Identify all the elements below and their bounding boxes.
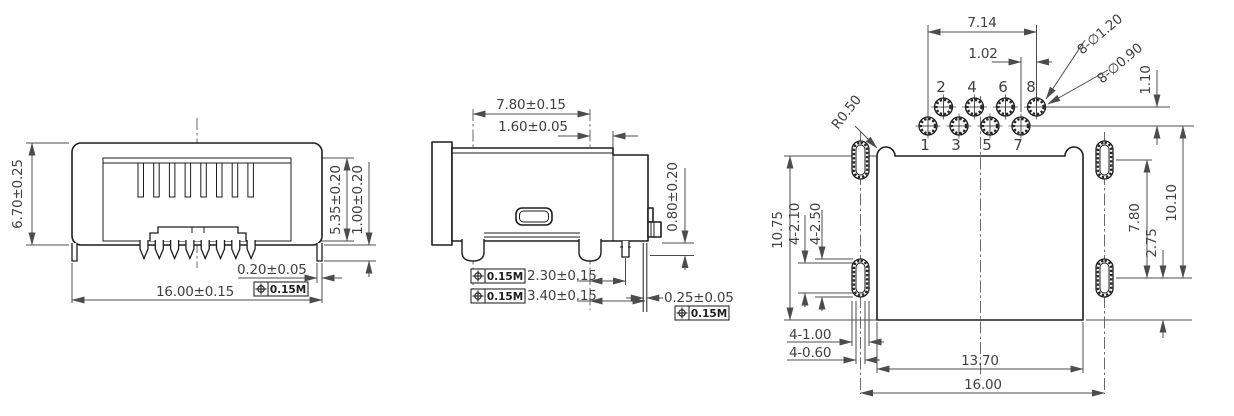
pin-label-3: 3 [951,136,961,154]
pin-hole-1 [916,114,941,139]
dim-overall-height: 10.10 [1164,184,1180,222]
pin-hole-4 [962,95,987,120]
dim-pad-width: 4-1.00 [789,327,831,343]
dim-front-opening: 5.35±0.20 [328,165,344,235]
callout-corner-radius: R0.50 [829,92,865,132]
latch-block [150,227,246,241]
dim-pin-stagger: 1.02 [968,46,997,62]
dim-side-row2: 3.40±0.15 [527,288,597,304]
dim-left-height: 10.75 [770,211,786,249]
dim-front-height: 6.70±0.25 [10,159,26,229]
engineering-drawing-canvas: 0.15M 6.70±0.25 16.00±0.15 0.20±0.05 [0,0,1234,416]
pin-hole-8 [1024,95,1049,120]
dim-front-tab: 0.20±0.05 [237,262,307,278]
mounting-pad [1096,141,1113,179]
pin-hole-7 [1009,114,1034,139]
through-pin-row1 [622,241,629,257]
dim-body-width: 13.70 [961,353,999,369]
dim-side-span: 7.80±0.15 [496,97,566,113]
pin-label-8: 8 [1026,78,1036,96]
pin-label-7: 7 [1013,136,1023,154]
dim-pad-length: 4-2.50 [808,203,824,245]
pin-label-1: 1 [920,136,930,154]
dim-side-row1: 2.30±0.15 [527,268,597,284]
pin-hole-5 [978,114,1003,139]
dim-slot-length: 4-2.10 [787,203,803,245]
left-leg [72,243,77,261]
dim-front-width: 16.00±0.15 [156,284,234,300]
mounting-post-front [462,239,484,261]
dim-front-protrusion: 1.00±0.20 [350,165,366,235]
side-geometry [432,142,661,312]
callout-pad-dia: 8-∅1.20 [1074,11,1126,58]
dim-side-pin-thickness: 0.25±0.05 [664,290,734,306]
front-geometry [72,118,322,268]
front-view: 6.70±0.25 16.00±0.15 0.20±0.05 5.35±0.20… [10,118,376,303]
dim-overall-width: 16.00 [964,377,1002,393]
right-leg [317,243,322,261]
footprint-geometry: 1 2 3 4 5 6 7 8 [852,78,1113,320]
pin-label-5: 5 [982,136,992,154]
dim-pad-column-span: 7.80 [1127,203,1143,232]
dim-side-offset: 1.60±0.05 [498,119,568,135]
dim-side-tab-height: 0.80±0.20 [665,162,681,232]
mounting-pad [852,141,869,179]
pin-label-2: 2 [936,78,946,96]
dim-pin-span: 7.14 [967,15,996,31]
dim-pad-to-edge: 2.75 [1144,228,1160,257]
connector-drawing: 0.15M 6.70±0.25 16.00±0.15 0.20±0.05 [0,0,1234,416]
footprint-dimensions: 7.14 1.02 8-∅1.20 8-∅0.90 1.10 R0.50 1 [770,11,1194,394]
pin-hole-2 [931,95,956,120]
front-flange [432,142,452,245]
pin-label-4: 4 [967,78,977,96]
pin-label-6: 6 [998,78,1008,96]
pin-hole-6 [993,95,1018,120]
dim-slot-width: 4-0.60 [789,345,831,361]
through-pin-row2 [643,243,647,312]
mounting-pad [1096,259,1113,297]
mounting-pad [852,259,869,297]
footprint-view: 7.14 1.02 8-∅1.20 8-∅0.90 1.10 R0.50 1 [770,11,1194,394]
mounting-post-rear [579,239,601,261]
shield-outline [877,147,1083,320]
pin-hole-3 [947,114,972,139]
side-body [452,148,648,241]
dim-row-gap: 1.10 [1138,65,1154,94]
side-view: 7.80±0.15 1.60±0.05 0.80±0.20 2.30±0.15 … [432,97,734,320]
